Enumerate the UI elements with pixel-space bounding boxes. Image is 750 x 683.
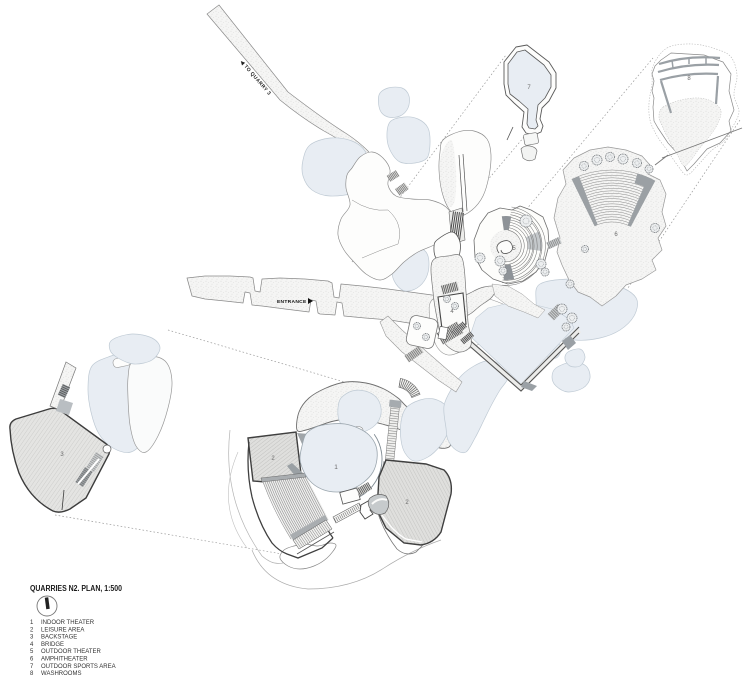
svg-text:BRIDGE: BRIDGE [41,642,64,648]
svg-text:ENTRANCE: ENTRANCE [277,299,307,305]
svg-text:AMPHITHEATER: AMPHITHEATER [41,657,88,663]
svg-text:INDOOR THEATER: INDOOR THEATER [41,620,95,626]
svg-text:1: 1 [334,464,338,471]
svg-text:BACKSTAGE: BACKSTAGE [41,635,77,641]
svg-text:LEISURE AREA: LEISURE AREA [41,627,84,633]
svg-text:QUARRIES N2. PLAN, 1:500: QUARRIES N2. PLAN, 1:500 [30,584,122,593]
svg-text:WASHROOMS: WASHROOMS [41,671,81,677]
svg-text:OUTDOOR THEATER: OUTDOOR THEATER [41,649,101,655]
svg-text:OUTDOOR SPORTS AREA: OUTDOOR SPORTS AREA [41,664,116,670]
